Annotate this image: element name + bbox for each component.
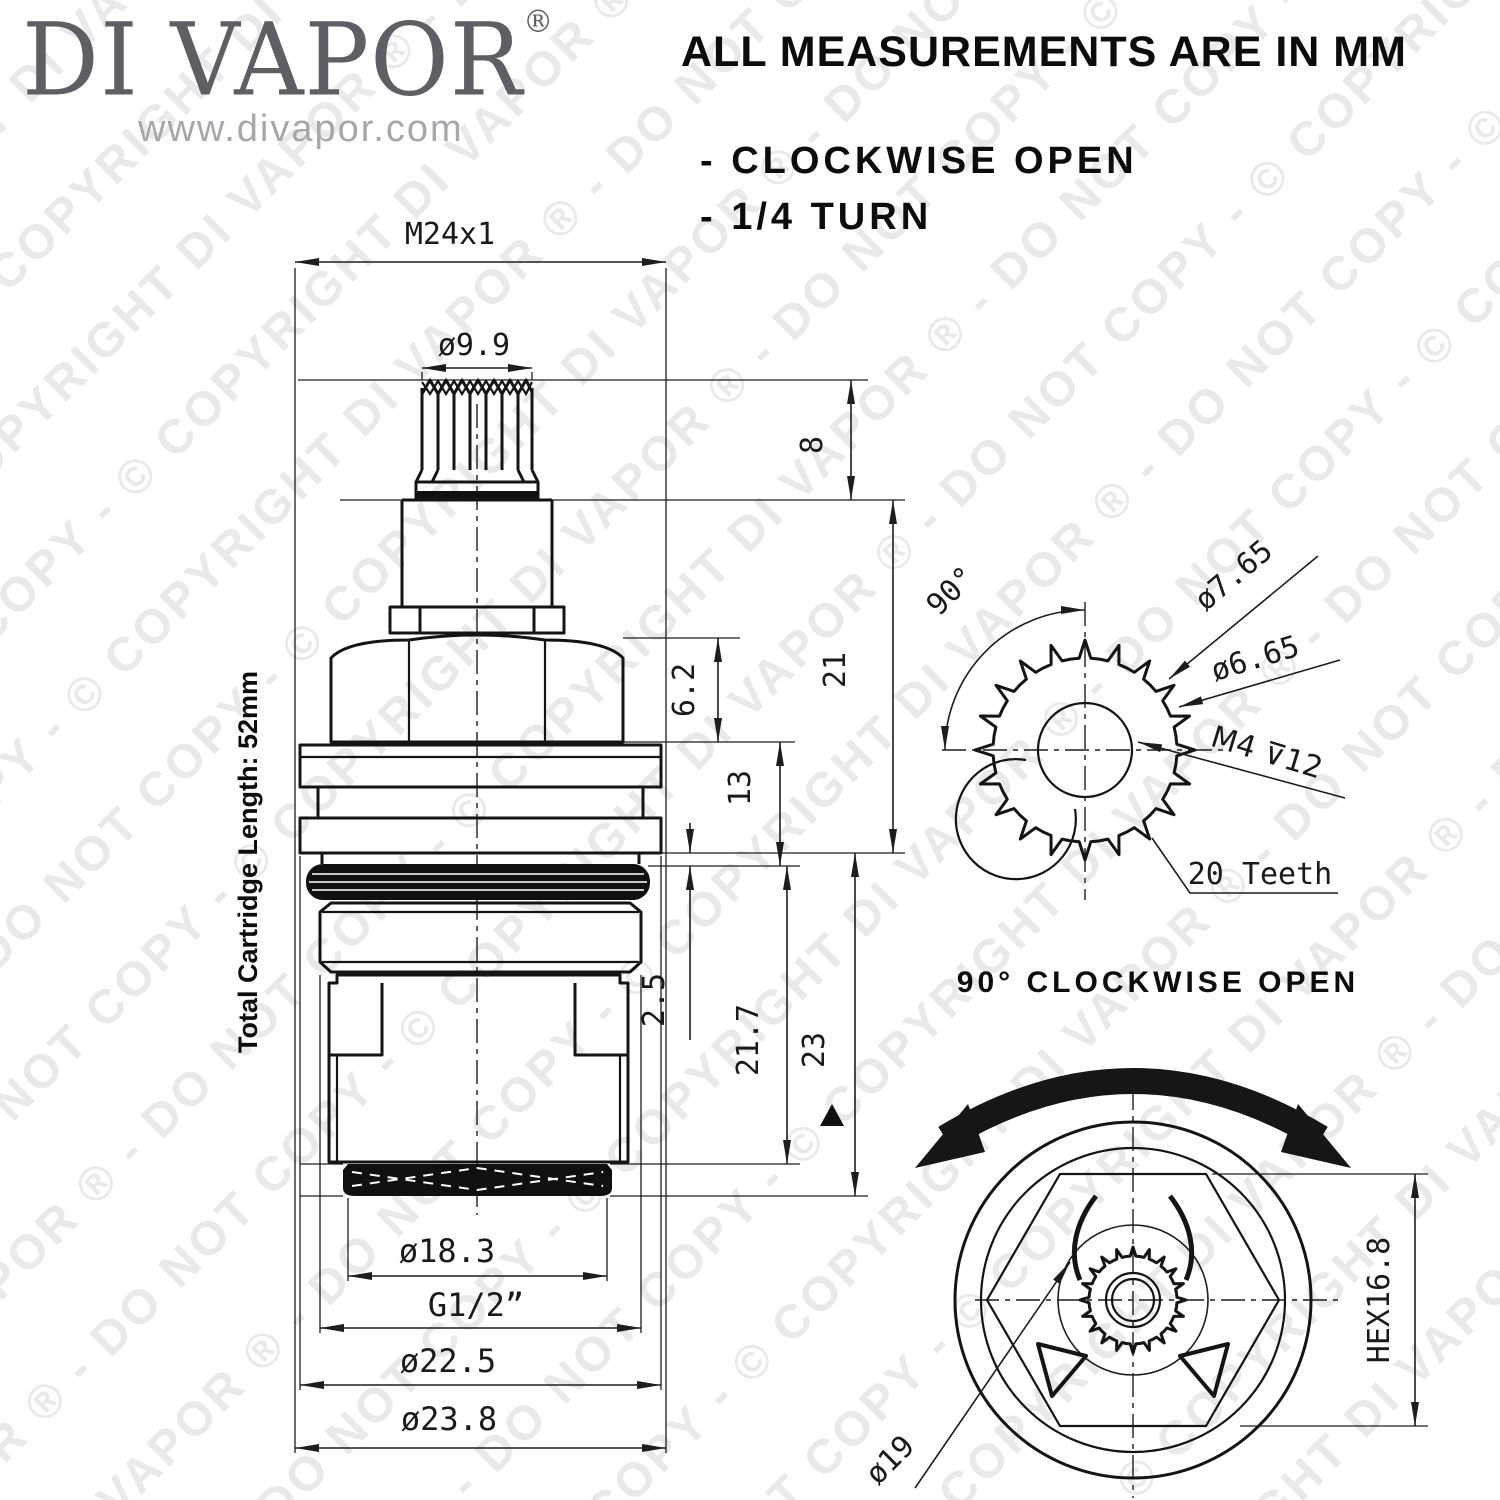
thread-ring [320, 903, 641, 972]
dim-6-2: 6.2 [667, 663, 702, 717]
label-tip-dia: ø7.65 [1188, 533, 1280, 618]
dim-21: 21 [818, 652, 853, 688]
dim-seal-dia: ø18.3 [399, 1232, 495, 1270]
bottom-seal [343, 1164, 612, 1196]
label-20-teeth: 20 Teeth [1188, 857, 1333, 892]
spline-top-view: 90° ø7.65 ø6.65 M4 ⊽12 20 Teeth [920, 533, 1345, 900]
dim-22-5: ø22.5 [400, 1342, 496, 1380]
dim-thread-bottom: G1/2” [428, 1286, 524, 1324]
dim-spline-dia: ø9.9 [438, 328, 510, 363]
datum-triangle-marker [820, 1104, 844, 1126]
label-dia19: ø19 [859, 1429, 922, 1492]
flange-washers [300, 745, 661, 864]
total-length-label: Total Cartridge Length: 52mm [233, 671, 263, 1053]
dim-23: 23 [797, 1032, 832, 1068]
label-hex: HEX16.8 [1362, 1237, 1397, 1363]
dim-21-7: 21.7 [731, 1004, 766, 1076]
dim-13: 13 [723, 770, 758, 806]
dim-23-8: ø23.8 [401, 1400, 497, 1438]
spline-pitch-arc [956, 759, 1076, 879]
bullet-clockwise-open: - CLOCKWISE OPEN [700, 140, 1138, 183]
dim-8: 8 [795, 436, 830, 454]
angle-arc [945, 610, 1085, 750]
label-90deg: 90° [920, 560, 983, 623]
label-pitch-dia: ø6.65 [1207, 629, 1304, 689]
bottom-view: 90° CLOCKWISE OPEN [859, 966, 1428, 1498]
brand-logo-text: DI VAPOR [22, 2, 523, 118]
measurements-note: ALL MEASUREMENTS ARE IN MM [681, 28, 1407, 77]
registered-mark-icon: ® [523, 4, 553, 40]
o-ring [306, 864, 650, 900]
dim-2-5: 2.5 [637, 973, 672, 1027]
brand-logo: DI VAPOR® [22, 2, 553, 118]
website-url: www.divapor.com [138, 108, 464, 151]
cartridge-body [329, 975, 628, 1162]
bullet-quarter-turn: - 1/4 TURN [700, 196, 932, 239]
page: © COPYRIGHT DI VAPOR ® - DO NOT COPY - ©… [0, 0, 1500, 1500]
bottom-view-title: 90° CLOCKWISE OPEN [957, 966, 1359, 999]
side-view: M24x1 ø9.9 8 21 6.2 13 2.5 21.7 23 ø18.3… [233, 217, 905, 1453]
dim-thread-top: M24x1 [405, 217, 495, 252]
